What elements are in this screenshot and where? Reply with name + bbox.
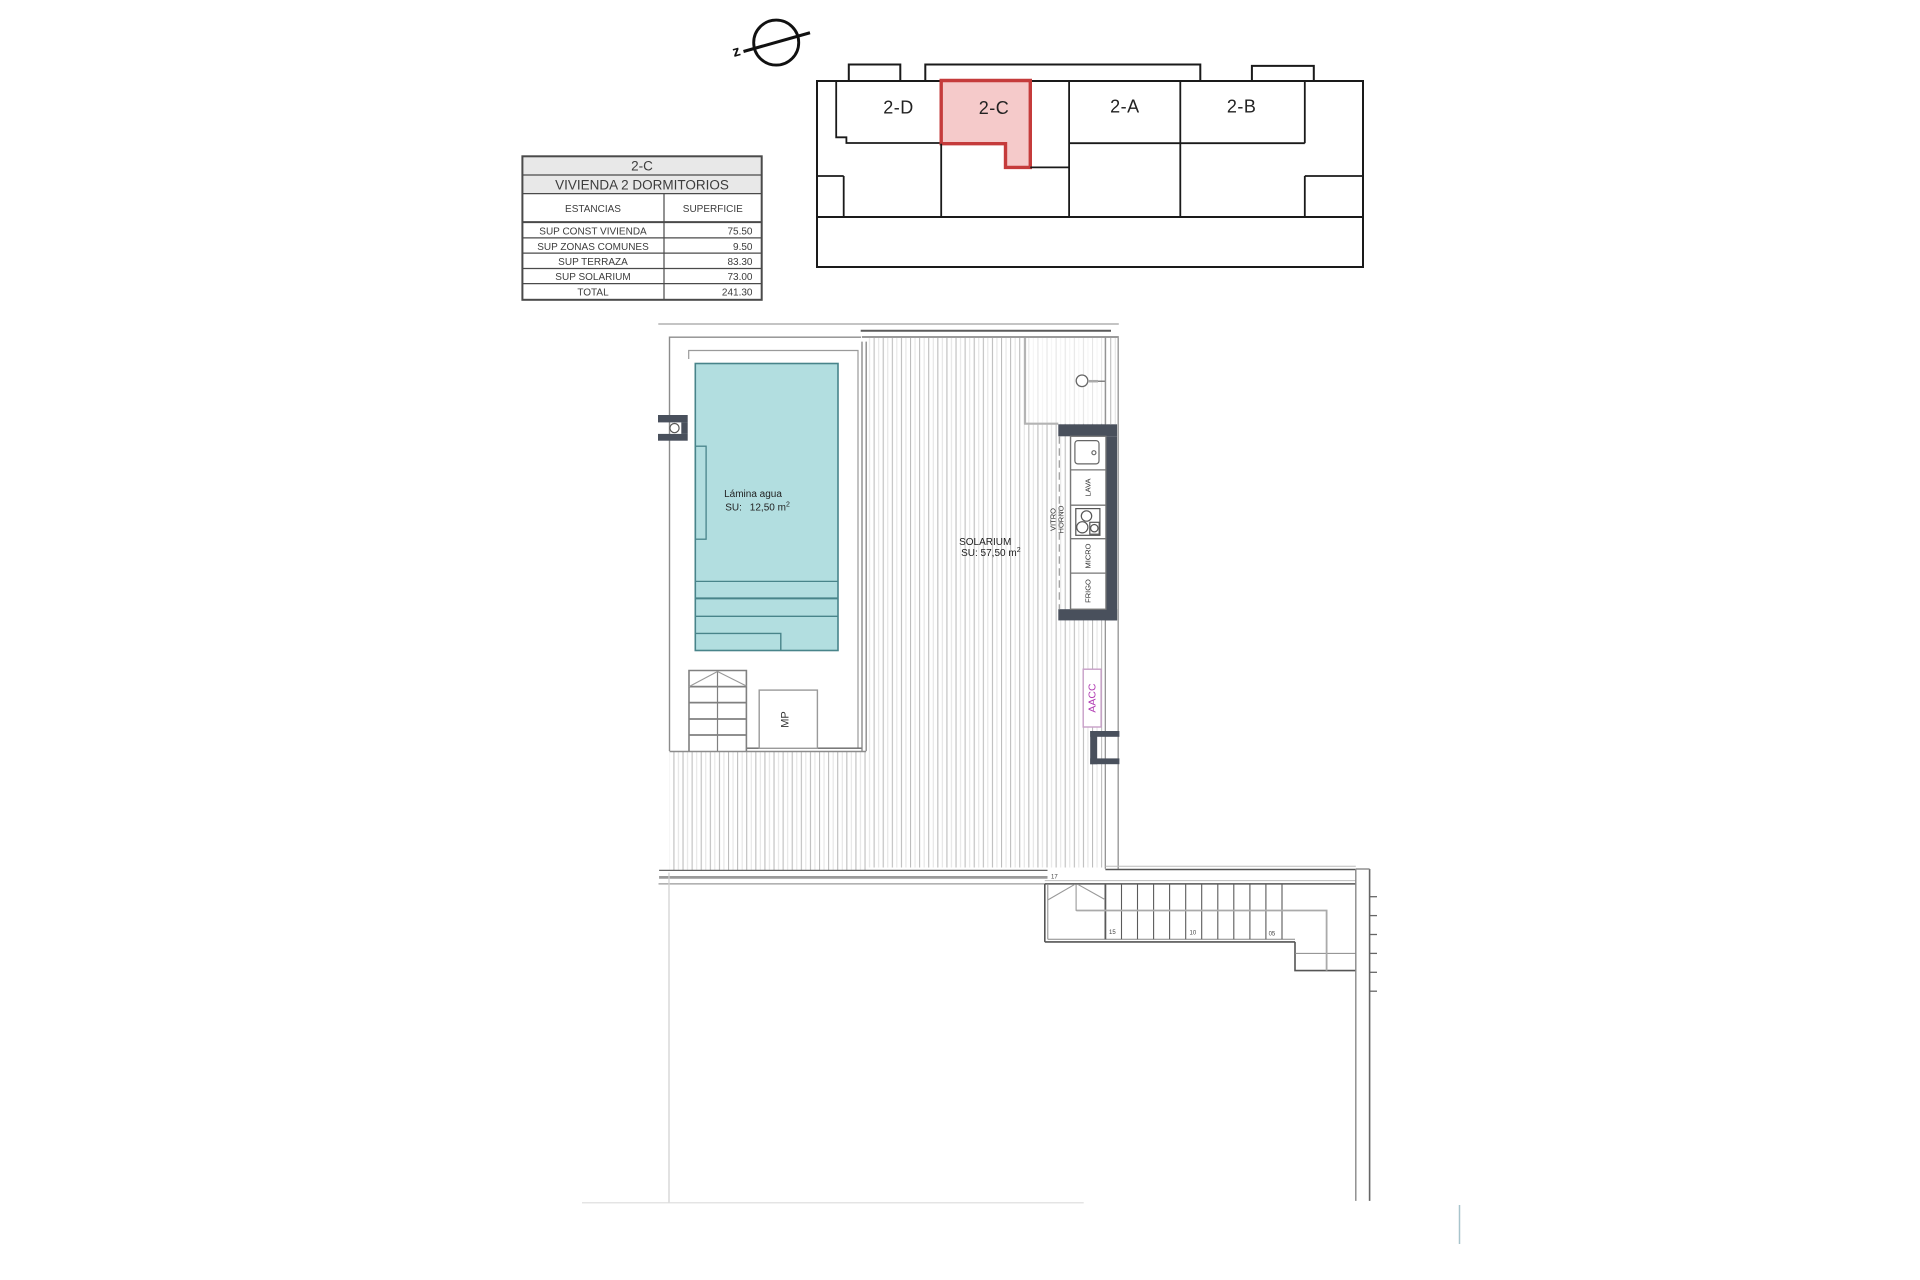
svg-text:Lámina agua: Lámina agua bbox=[724, 489, 782, 500]
svg-text:12,50 m2: 12,50 m2 bbox=[750, 502, 790, 514]
svg-text:FRIGO: FRIGO bbox=[1084, 579, 1093, 603]
svg-text:SU: 57,50 m2: SU: 57,50 m2 bbox=[961, 547, 1021, 559]
svg-text:SUP SOLARIUM: SUP SOLARIUM bbox=[555, 272, 630, 283]
svg-text:9.50: 9.50 bbox=[733, 242, 753, 253]
svg-text:SUP CONST VIVIENDA: SUP CONST VIVIENDA bbox=[539, 227, 647, 238]
svg-text:SUPERFICIE: SUPERFICIE bbox=[683, 204, 743, 215]
svg-text:241.30: 241.30 bbox=[722, 288, 753, 299]
svg-text:2-D: 2-D bbox=[883, 98, 914, 118]
svg-text:SU:: SU: bbox=[725, 503, 742, 514]
svg-text:2-B: 2-B bbox=[1227, 97, 1257, 117]
svg-text:VIVIENDA 2 DORMITORIOS: VIVIENDA 2 DORMITORIOS bbox=[555, 177, 729, 192]
svg-text:AACC: AACC bbox=[1087, 683, 1099, 713]
svg-text:LAVA: LAVA bbox=[1084, 478, 1093, 496]
svg-text:MP: MP bbox=[780, 711, 792, 728]
svg-text:2-C: 2-C bbox=[979, 98, 1010, 118]
svg-text:MICRO: MICRO bbox=[1084, 543, 1093, 568]
svg-text:75.50: 75.50 bbox=[727, 227, 752, 238]
svg-text:05: 05 bbox=[1269, 932, 1276, 938]
svg-text:HORNO: HORNO bbox=[1057, 505, 1066, 533]
svg-text:2-C: 2-C bbox=[631, 159, 653, 174]
svg-text:SOLARIUM: SOLARIUM bbox=[959, 537, 1011, 548]
svg-text:ESTANCIAS: ESTANCIAS bbox=[565, 204, 621, 215]
svg-text:73.00: 73.00 bbox=[727, 272, 752, 283]
svg-text:83.30: 83.30 bbox=[727, 257, 752, 268]
svg-text:15: 15 bbox=[1109, 930, 1116, 936]
svg-text:17: 17 bbox=[1051, 875, 1058, 881]
svg-text:TOTAL: TOTAL bbox=[577, 288, 609, 299]
svg-text:SUP TERRAZA: SUP TERRAZA bbox=[558, 257, 628, 268]
svg-text:2-A: 2-A bbox=[1110, 97, 1140, 117]
svg-text:SUP ZONAS COMUNES: SUP ZONAS COMUNES bbox=[537, 242, 649, 253]
svg-text:10: 10 bbox=[1190, 931, 1197, 937]
